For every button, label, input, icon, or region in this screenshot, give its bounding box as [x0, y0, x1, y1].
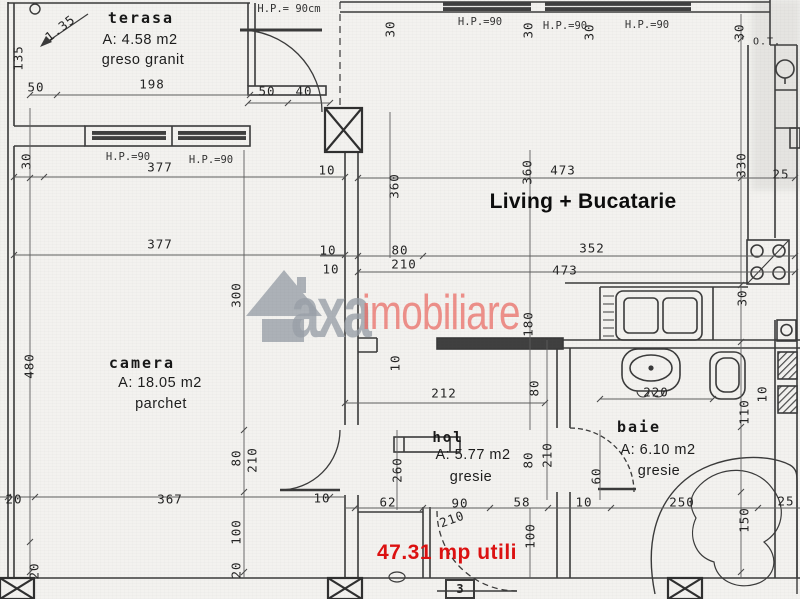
dimension-label: 25	[772, 167, 789, 182]
dimension-label: 480	[22, 353, 37, 379]
dimension-label: 210	[540, 442, 555, 468]
parapet-height-label: H.P.=90	[189, 154, 233, 166]
room-label-hol: hol	[432, 430, 463, 446]
dimension-label: 352	[579, 241, 605, 256]
dimension-label: 473	[550, 163, 576, 178]
parapet-height-label: H.P.=90	[543, 20, 587, 32]
room-label-camera: camera	[109, 354, 175, 372]
dimension-label: 150	[737, 507, 752, 533]
room-label-baie: baie	[617, 418, 661, 436]
room-area-terasa: A: 4.58 m2	[102, 32, 177, 48]
dimension-label: 367	[157, 492, 183, 507]
dimension-label: 110	[737, 399, 752, 425]
dimension-label: 10	[755, 385, 770, 402]
dimension-label: 250	[669, 495, 695, 510]
room-label-living: Living + Bucatarie	[490, 190, 677, 214]
dimension-label: 210	[391, 257, 417, 272]
small-sink-icon	[777, 320, 796, 341]
column-icon	[668, 578, 702, 599]
entry-door-arc	[240, 30, 322, 112]
dimension-label: 300	[229, 282, 244, 308]
room-label-terasa: terasa	[108, 9, 174, 27]
dimension-label: 10	[388, 354, 403, 371]
duct-hatch	[778, 352, 797, 413]
kitchen-sink-icon	[603, 291, 702, 340]
dimension-label: 100	[523, 523, 538, 549]
column-icon	[328, 578, 362, 599]
dimension-label: 377	[147, 237, 173, 252]
door-handle-icon	[389, 572, 405, 582]
dimension-label: 473	[552, 263, 578, 278]
dimension-label: 50	[258, 84, 275, 99]
parapet-height-label: H.P.=90	[106, 151, 150, 163]
toilet-icon	[710, 352, 745, 399]
door-number-label: 3	[456, 582, 463, 596]
dimension-label: 30	[19, 152, 34, 169]
dimension-label: 210	[245, 447, 260, 473]
dimension-label: 260	[390, 457, 405, 483]
dimension-label: 100	[229, 519, 244, 545]
dimension-label: 220	[643, 385, 669, 400]
dimension-label: 50	[27, 80, 44, 95]
dimension-label: 10	[575, 495, 592, 510]
room-floor-baie: gresie	[638, 463, 681, 479]
dimension-label: 80	[527, 379, 542, 396]
dimension-label: 30	[521, 21, 536, 38]
dimension-label: 30	[735, 289, 750, 306]
dimension-label: 40	[295, 84, 312, 99]
total-area-label: 47.31 mp utili	[377, 541, 517, 565]
dimension-label: 80	[391, 243, 408, 258]
survey-point-icon	[30, 4, 40, 14]
dimension-label: 30	[732, 23, 747, 40]
dimension-label: 80	[229, 449, 244, 466]
dimension-label: 10	[319, 243, 336, 258]
dimension-label: 20	[5, 492, 22, 507]
parapet-height-label: H.P.=90	[458, 16, 502, 28]
dimension-label: 80	[521, 451, 536, 468]
camera-door-arc	[280, 430, 340, 490]
dimension-label: 360	[520, 159, 535, 185]
room-area-baie: A: 6.10 m2	[620, 442, 695, 458]
room-floor-terasa: greso granit	[102, 52, 185, 68]
dimension-label: 25	[777, 494, 794, 509]
dimension-label: 10	[322, 262, 339, 277]
stove-icon	[747, 240, 789, 284]
dimension-label: 330	[734, 152, 749, 178]
boiler-icon	[776, 60, 794, 84]
dimension-label: 20	[27, 562, 42, 579]
room-area-camera: A: 18.05 m2	[118, 375, 202, 391]
dimension-label: 198	[139, 77, 165, 92]
dimension-label: 62	[379, 495, 396, 510]
dimension-label: 10	[318, 163, 335, 178]
dimension-label: 135	[11, 45, 26, 71]
dimension-label: 360	[387, 173, 402, 199]
columns	[0, 108, 702, 599]
dimension-label: 30	[383, 20, 398, 37]
dimension-label: 20	[229, 561, 244, 578]
dimension-label: 60	[589, 467, 604, 484]
dimension-label: 58	[513, 495, 530, 510]
watermark-brand-gray: axa	[291, 288, 369, 340]
parapet-height-label: H.P.=90	[625, 19, 669, 31]
floor-plan: axa imobiliare terasa A: 4.58 m2 greso g…	[0, 0, 800, 599]
room-floor-hol: gresie	[450, 469, 493, 485]
dimension-label: 212	[431, 386, 457, 401]
dimension-label: 10	[313, 491, 330, 506]
watermark-brand-red: imobiliare	[362, 291, 520, 335]
column-icon	[0, 578, 34, 599]
dimension-label: 30	[582, 23, 597, 40]
room-area-hol: A: 5.77 m2	[435, 447, 510, 463]
room-floor-camera: parchet	[135, 396, 187, 412]
parapet-height-label: H.P.= 90cm	[257, 3, 320, 15]
dimension-label: 180	[521, 311, 536, 337]
dimension-label: 377	[147, 160, 173, 175]
boiler-label: O.T.	[753, 37, 781, 48]
column-icon	[325, 108, 362, 152]
